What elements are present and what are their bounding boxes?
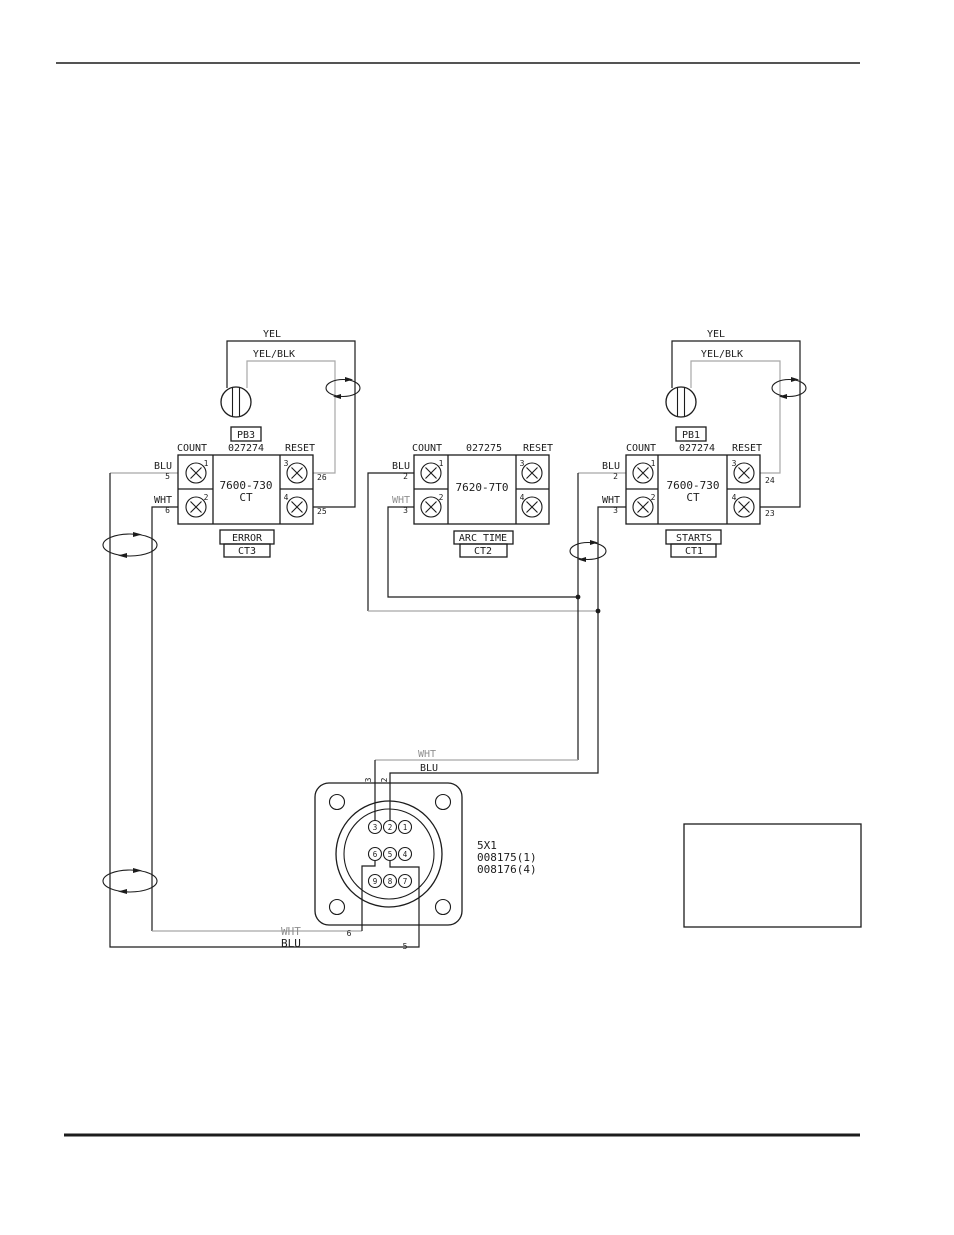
ct2-term3: 3 (520, 459, 525, 468)
ct1-wht-wire: 3 (613, 506, 618, 515)
ct3-term1: 1 (204, 459, 209, 468)
mounting-hole (330, 795, 345, 810)
junction-dot (596, 609, 601, 614)
ct3-reset-header: RESET (285, 443, 315, 454)
pin-2: 2 (388, 823, 393, 832)
ct2-term4: 4 (520, 493, 525, 502)
ct3-blu-wire: 5 (165, 472, 170, 481)
ct2-reset-header: RESET (523, 443, 553, 454)
pin-3: 3 (373, 823, 378, 832)
connector-pins: 3 2 1 6 5 4 9 8 7 (369, 821, 412, 888)
ct3-ref: CT3 (238, 546, 256, 557)
pin3-wire-number: 3 (364, 777, 373, 782)
note-box (684, 824, 861, 927)
mounting-hole (436, 795, 451, 810)
ct1-part-number: 027274 (679, 443, 715, 454)
ct3-count-header: COUNT (177, 443, 207, 454)
wht-mid-label: WHT (418, 749, 436, 760)
ct1-function: STARTS (676, 533, 712, 544)
connector-5x1: 3 2 1 6 5 4 9 8 7 3 2 5X1 008175(1) 0081… (315, 777, 537, 925)
pin-7: 7 (403, 877, 408, 886)
ct1-blu-label: BLU (602, 461, 620, 472)
ct2-term1: 1 (439, 459, 444, 468)
ct2-term2: 2 (439, 493, 444, 502)
ct1-count-header: COUNT (626, 443, 656, 454)
blu-bottom-label: BLU (281, 937, 301, 950)
ct3-wht-wire: 6 (165, 506, 170, 515)
twist-symbol-left-lower (103, 868, 157, 894)
ct2-device: 7620-7T0 (456, 481, 509, 494)
ct2-wht-label: WHT (392, 495, 410, 506)
pushbutton-pb3-symbol (221, 387, 251, 417)
pin-1: 1 (403, 823, 408, 832)
pin-9: 9 (373, 877, 378, 886)
ct1-wire3: 24 (765, 476, 775, 485)
wiring-diagram: PB3 COUNT 027274 RESET 7600-730 CT 1 2 3… (0, 0, 954, 1235)
twist-symbol-right-yel (772, 377, 806, 399)
mounting-hole (436, 900, 451, 915)
module-ct3: PB3 COUNT 027274 RESET 7600-730 CT 1 2 3… (154, 329, 327, 557)
module-ct2: COUNT 027275 RESET 7620-7T0 1 2 3 4 BLU … (392, 443, 553, 557)
yel-blk-right-label: YEL/BLK (701, 349, 743, 360)
yel-left-label: YEL (263, 329, 281, 340)
ct3-term4: 4 (284, 493, 289, 502)
pin-4: 4 (403, 850, 408, 859)
ct3-function: ERROR (232, 533, 263, 544)
ct2-function: ARC TIME (459, 533, 507, 544)
module-ct1: PB1 COUNT 027274 RESET 7600-730 CT 1 2 3… (602, 329, 775, 557)
blu-mid-label: BLU (420, 763, 438, 774)
pin6-wire-number: 6 (347, 929, 352, 938)
pin-8: 8 (388, 877, 393, 886)
ct1-wht-label: WHT (602, 495, 620, 506)
pin5-wire-number: 5 (403, 942, 408, 951)
connector-part-b: 008176(4) (477, 863, 537, 876)
page-rules (56, 63, 860, 1135)
ct1-term3: 3 (732, 459, 737, 468)
ct3-term3: 3 (284, 459, 289, 468)
schematic-page: PB3 COUNT 027274 RESET 7600-730 CT 1 2 3… (0, 0, 954, 1235)
ct1-term2: 2 (651, 493, 656, 502)
twist-symbol-left-upper (103, 532, 157, 558)
ct3-blu-label: BLU (154, 461, 172, 472)
ct1-term4: 4 (732, 493, 737, 502)
ct2-count-header: COUNT (412, 443, 442, 454)
ct3-part-number: 027274 (228, 443, 264, 454)
ct1-device-sub: CT (686, 491, 700, 504)
ct3-device-sub: CT (239, 491, 253, 504)
yel-blk-left-label: YEL/BLK (253, 349, 295, 360)
mid-wire-labels: WHT BLU (418, 749, 438, 774)
ct2-blu-label: BLU (392, 461, 410, 472)
ct3-wire4: 25 (317, 507, 327, 516)
ct3-wht-label: WHT (154, 495, 172, 506)
pin-6: 6 (373, 850, 378, 859)
pin-5: 5 (388, 850, 393, 859)
ct3-wire3: 26 (317, 473, 327, 482)
pb3-label: PB3 (237, 430, 255, 441)
ct1-ref: CT1 (685, 546, 703, 557)
ct1-blu-wire: 2 (613, 472, 618, 481)
ct1-wire4: 23 (765, 509, 775, 518)
ct3-term2: 2 (204, 493, 209, 502)
ct2-ref: CT2 (474, 546, 492, 557)
junction-dot (576, 595, 581, 600)
yel-right-label: YEL (707, 329, 725, 340)
ct1-term1: 1 (651, 459, 656, 468)
pb1-label: PB1 (682, 430, 700, 441)
ct1-reset-header: RESET (732, 443, 762, 454)
twist-symbol-center (570, 540, 606, 562)
pushbutton-pb1-symbol (666, 387, 696, 417)
ct2-blu-wire: 2 (403, 472, 408, 481)
mounting-hole (330, 900, 345, 915)
ct2-wht-wire: 3 (403, 506, 408, 515)
pin2-wire-number: 2 (380, 777, 389, 782)
ct2-part-number: 027275 (466, 443, 502, 454)
